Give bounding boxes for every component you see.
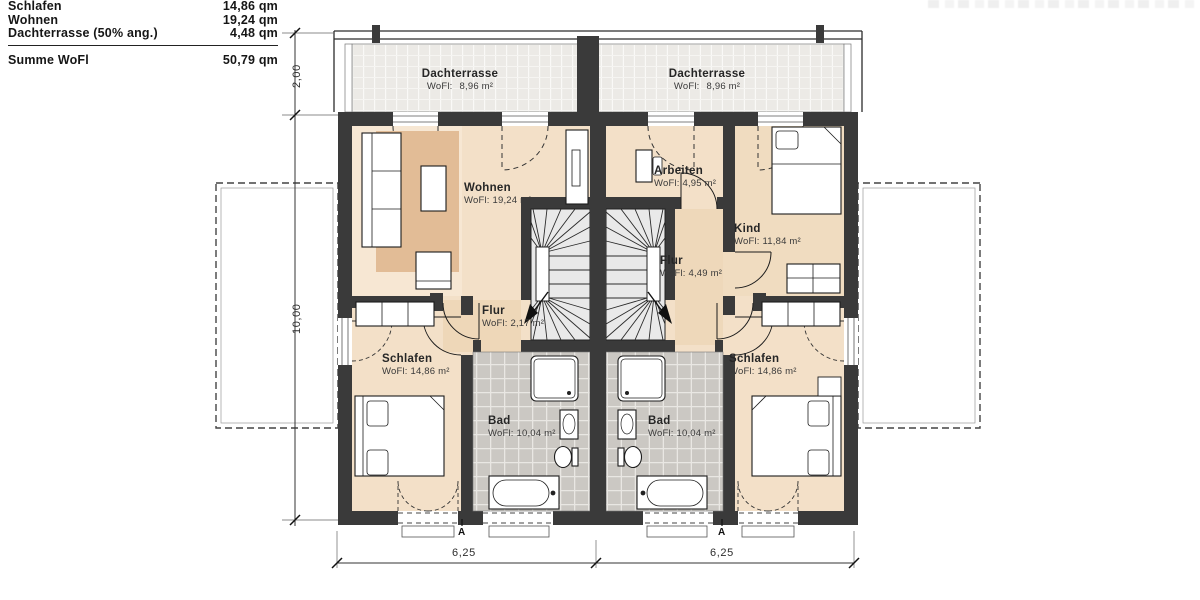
legend-total-label: Summe WoFl bbox=[8, 54, 89, 68]
dresser-icon bbox=[356, 302, 434, 326]
legend-value: 19,24 qm bbox=[223, 14, 278, 28]
sofa-icon bbox=[362, 133, 401, 247]
legend-total-row: Summe WoFl 50,79 qm bbox=[8, 54, 278, 68]
legend-label: Wohnen bbox=[8, 14, 58, 28]
legend-divider bbox=[8, 45, 278, 46]
legend-value: 4,48 qm bbox=[230, 27, 278, 41]
coffee-table-icon bbox=[421, 166, 446, 211]
roof-overhang-outline bbox=[216, 183, 338, 428]
terrace-half bbox=[334, 25, 598, 112]
legend-value: 14,86 qm bbox=[223, 0, 278, 14]
shelf-icon bbox=[787, 264, 840, 293]
legend-label: Dachterrasse (50% ang.) bbox=[8, 27, 158, 41]
legend-total-value: 50,79 qm bbox=[223, 54, 278, 68]
toilet-icon bbox=[572, 448, 578, 466]
armchair-icon bbox=[416, 252, 451, 289]
floor-plan-drawing bbox=[0, 0, 1200, 600]
area-legend: Schlafen 14,86 qm Wohnen 19,24 qm Dachte… bbox=[8, 0, 278, 67]
chair-icon bbox=[653, 157, 662, 175]
legend-row: Dachterrasse (50% ang.) 4,48 qm bbox=[8, 27, 278, 41]
desk-icon bbox=[636, 150, 652, 182]
legend-row: Schlafen 14,86 qm bbox=[8, 0, 278, 14]
watermark-strip bbox=[928, 0, 1198, 8]
legend-row: Wohnen 19,24 qm bbox=[8, 14, 278, 28]
legend-label: Schlafen bbox=[8, 0, 62, 14]
staircase bbox=[524, 209, 590, 340]
bathroom bbox=[473, 352, 590, 511]
floorplan-page: Schlafen 14,86 qm Wohnen 19,24 qm Dachte… bbox=[0, 0, 1200, 600]
nightstand-icon bbox=[818, 377, 841, 396]
